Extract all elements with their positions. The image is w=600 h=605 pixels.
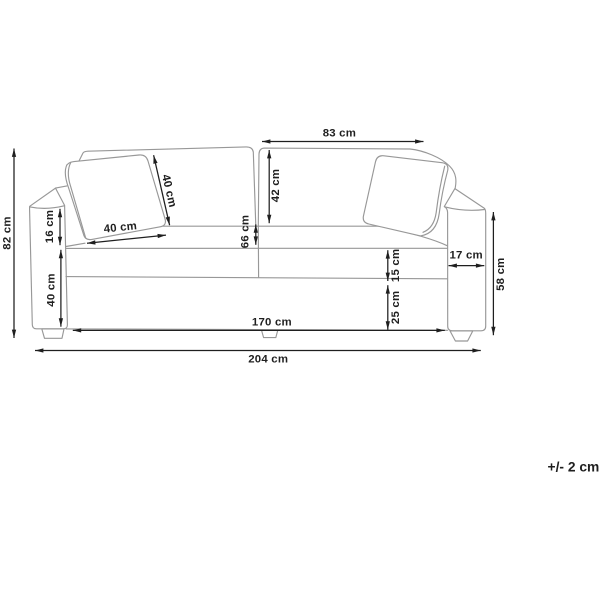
svg-text:+/- 2 cm: +/- 2 cm xyxy=(548,460,600,475)
svg-text:58 cm: 58 cm xyxy=(495,257,507,290)
svg-text:83 cm: 83 cm xyxy=(323,127,356,139)
svg-text:170 cm: 170 cm xyxy=(252,317,292,329)
svg-text:17 cm: 17 cm xyxy=(449,249,482,261)
svg-text:15 cm: 15 cm xyxy=(390,249,402,282)
svg-text:42 cm: 42 cm xyxy=(270,169,282,202)
svg-text:16 cm: 16 cm xyxy=(44,210,56,243)
svg-text:25 cm: 25 cm xyxy=(390,291,402,324)
svg-text:66 cm: 66 cm xyxy=(239,215,251,248)
svg-text:40 cm: 40 cm xyxy=(103,220,137,235)
svg-text:40 cm: 40 cm xyxy=(46,273,58,306)
svg-text:204 cm: 204 cm xyxy=(248,353,288,365)
svg-text:82 cm: 82 cm xyxy=(2,216,14,249)
